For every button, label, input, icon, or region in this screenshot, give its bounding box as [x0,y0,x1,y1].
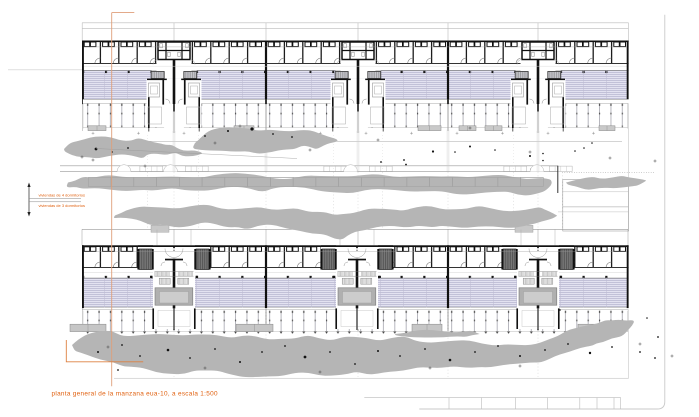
svg-text:viviendas de 4 dormitorios: viviendas de 4 dormitorios [39,192,85,197]
svg-text:planta general de la manzana e: planta general de la manzana eua-10, a e… [52,391,218,398]
svg-text:viviendas de 3 dormitorios: viviendas de 3 dormitorios [39,203,85,208]
